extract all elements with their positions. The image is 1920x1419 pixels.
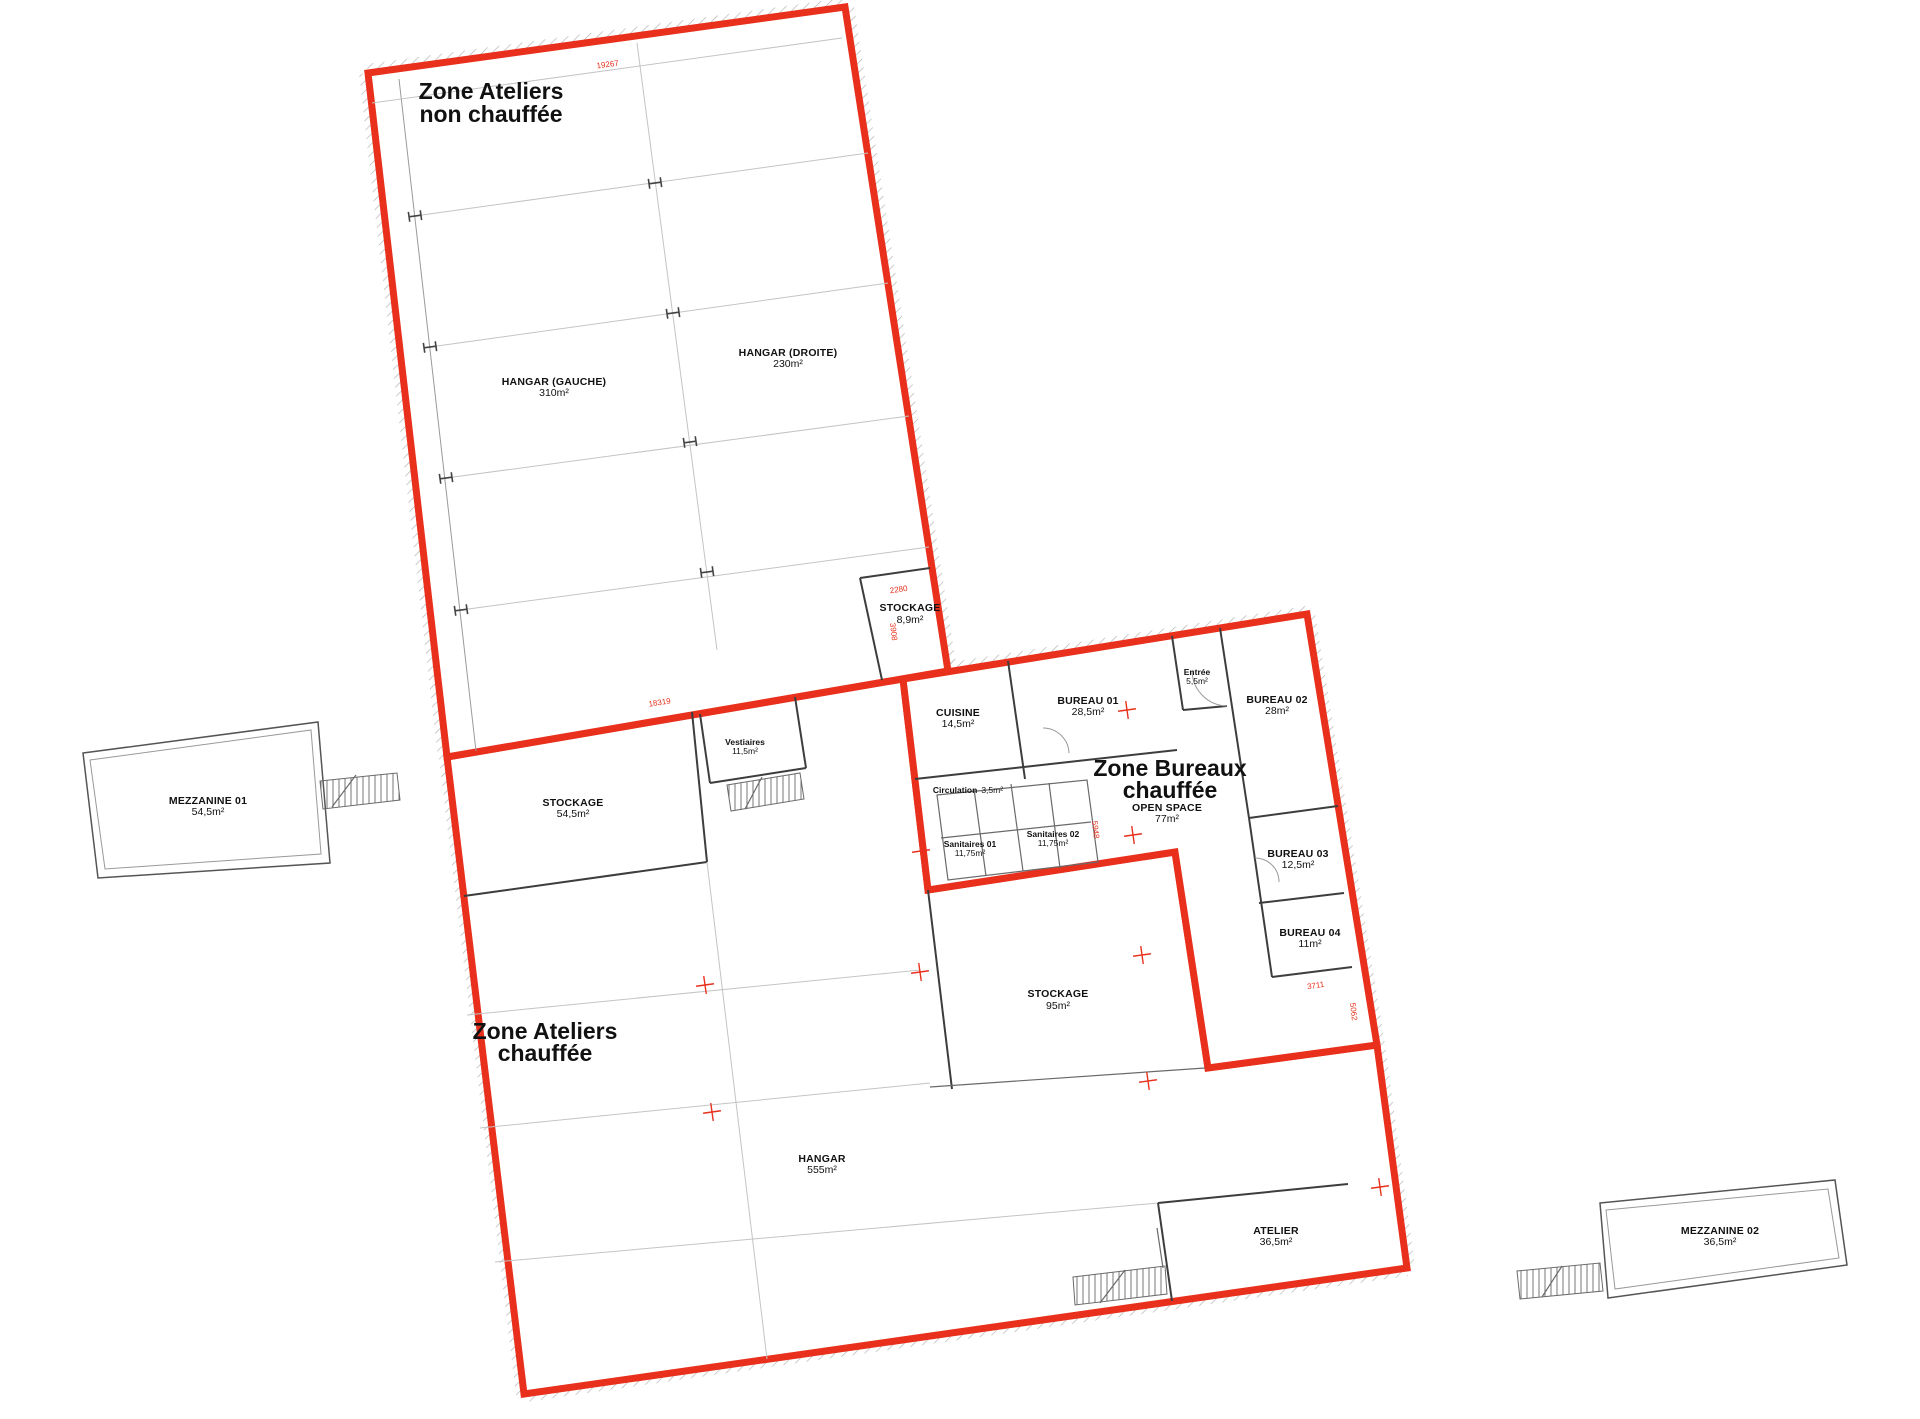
room-area-hangar-gauche: 310m² <box>539 387 569 399</box>
room-label-stockage-95: STOCKAGE <box>1028 988 1089 1000</box>
room-area-stockage-54: 54,5m² <box>557 808 590 820</box>
zone-label-bureaux-line2: chauffée <box>1123 777 1218 803</box>
room-area-sanitaires-01: 11,75m² <box>955 848 986 858</box>
room-area-stockage-89: 8,9m² <box>897 614 924 626</box>
room-area-stockage-95: 95m² <box>1046 1000 1070 1012</box>
room-area-vestiaires: 11,5m² <box>732 746 758 756</box>
room-area-bureau-03: 12,5m² <box>1282 859 1315 871</box>
room-area-entree: 5,5m² <box>1186 676 1208 686</box>
room-area-bureau-04: 11m² <box>1298 938 1322 950</box>
room-area-bureau-01: 28,5m² <box>1072 706 1105 718</box>
room-area-hangar-droite: 230m² <box>773 358 803 370</box>
room-area-mezzanine-02: 36,5m² <box>1704 1236 1737 1248</box>
zone-label-non-chauffee-line2: non chauffée <box>419 101 562 127</box>
room-label-circulation: Circulation3,5m² <box>933 785 1003 795</box>
room-area-open-space: 77m² <box>1155 813 1179 825</box>
room-area-bureau-02: 28m² <box>1265 705 1289 717</box>
zone-label-chauffee-line2: chauffée <box>498 1040 593 1066</box>
room-area-cuisine: 14,5m² <box>942 718 975 730</box>
floor-plan-svg: Zone Ateliers non chauffée Zone Bureaux … <box>0 0 1920 1419</box>
room-area-mezzanine-01: 54,5m² <box>192 806 225 818</box>
room-area-atelier: 36,5m² <box>1260 1236 1293 1248</box>
floor-plan: Zone Ateliers non chauffée Zone Bureaux … <box>0 0 1920 1419</box>
room-area-hangar: 555m² <box>807 1164 837 1176</box>
room-label-stockage-89: STOCKAGE <box>880 602 941 614</box>
room-area-sanitaires-02: 11,75m² <box>1038 838 1069 848</box>
